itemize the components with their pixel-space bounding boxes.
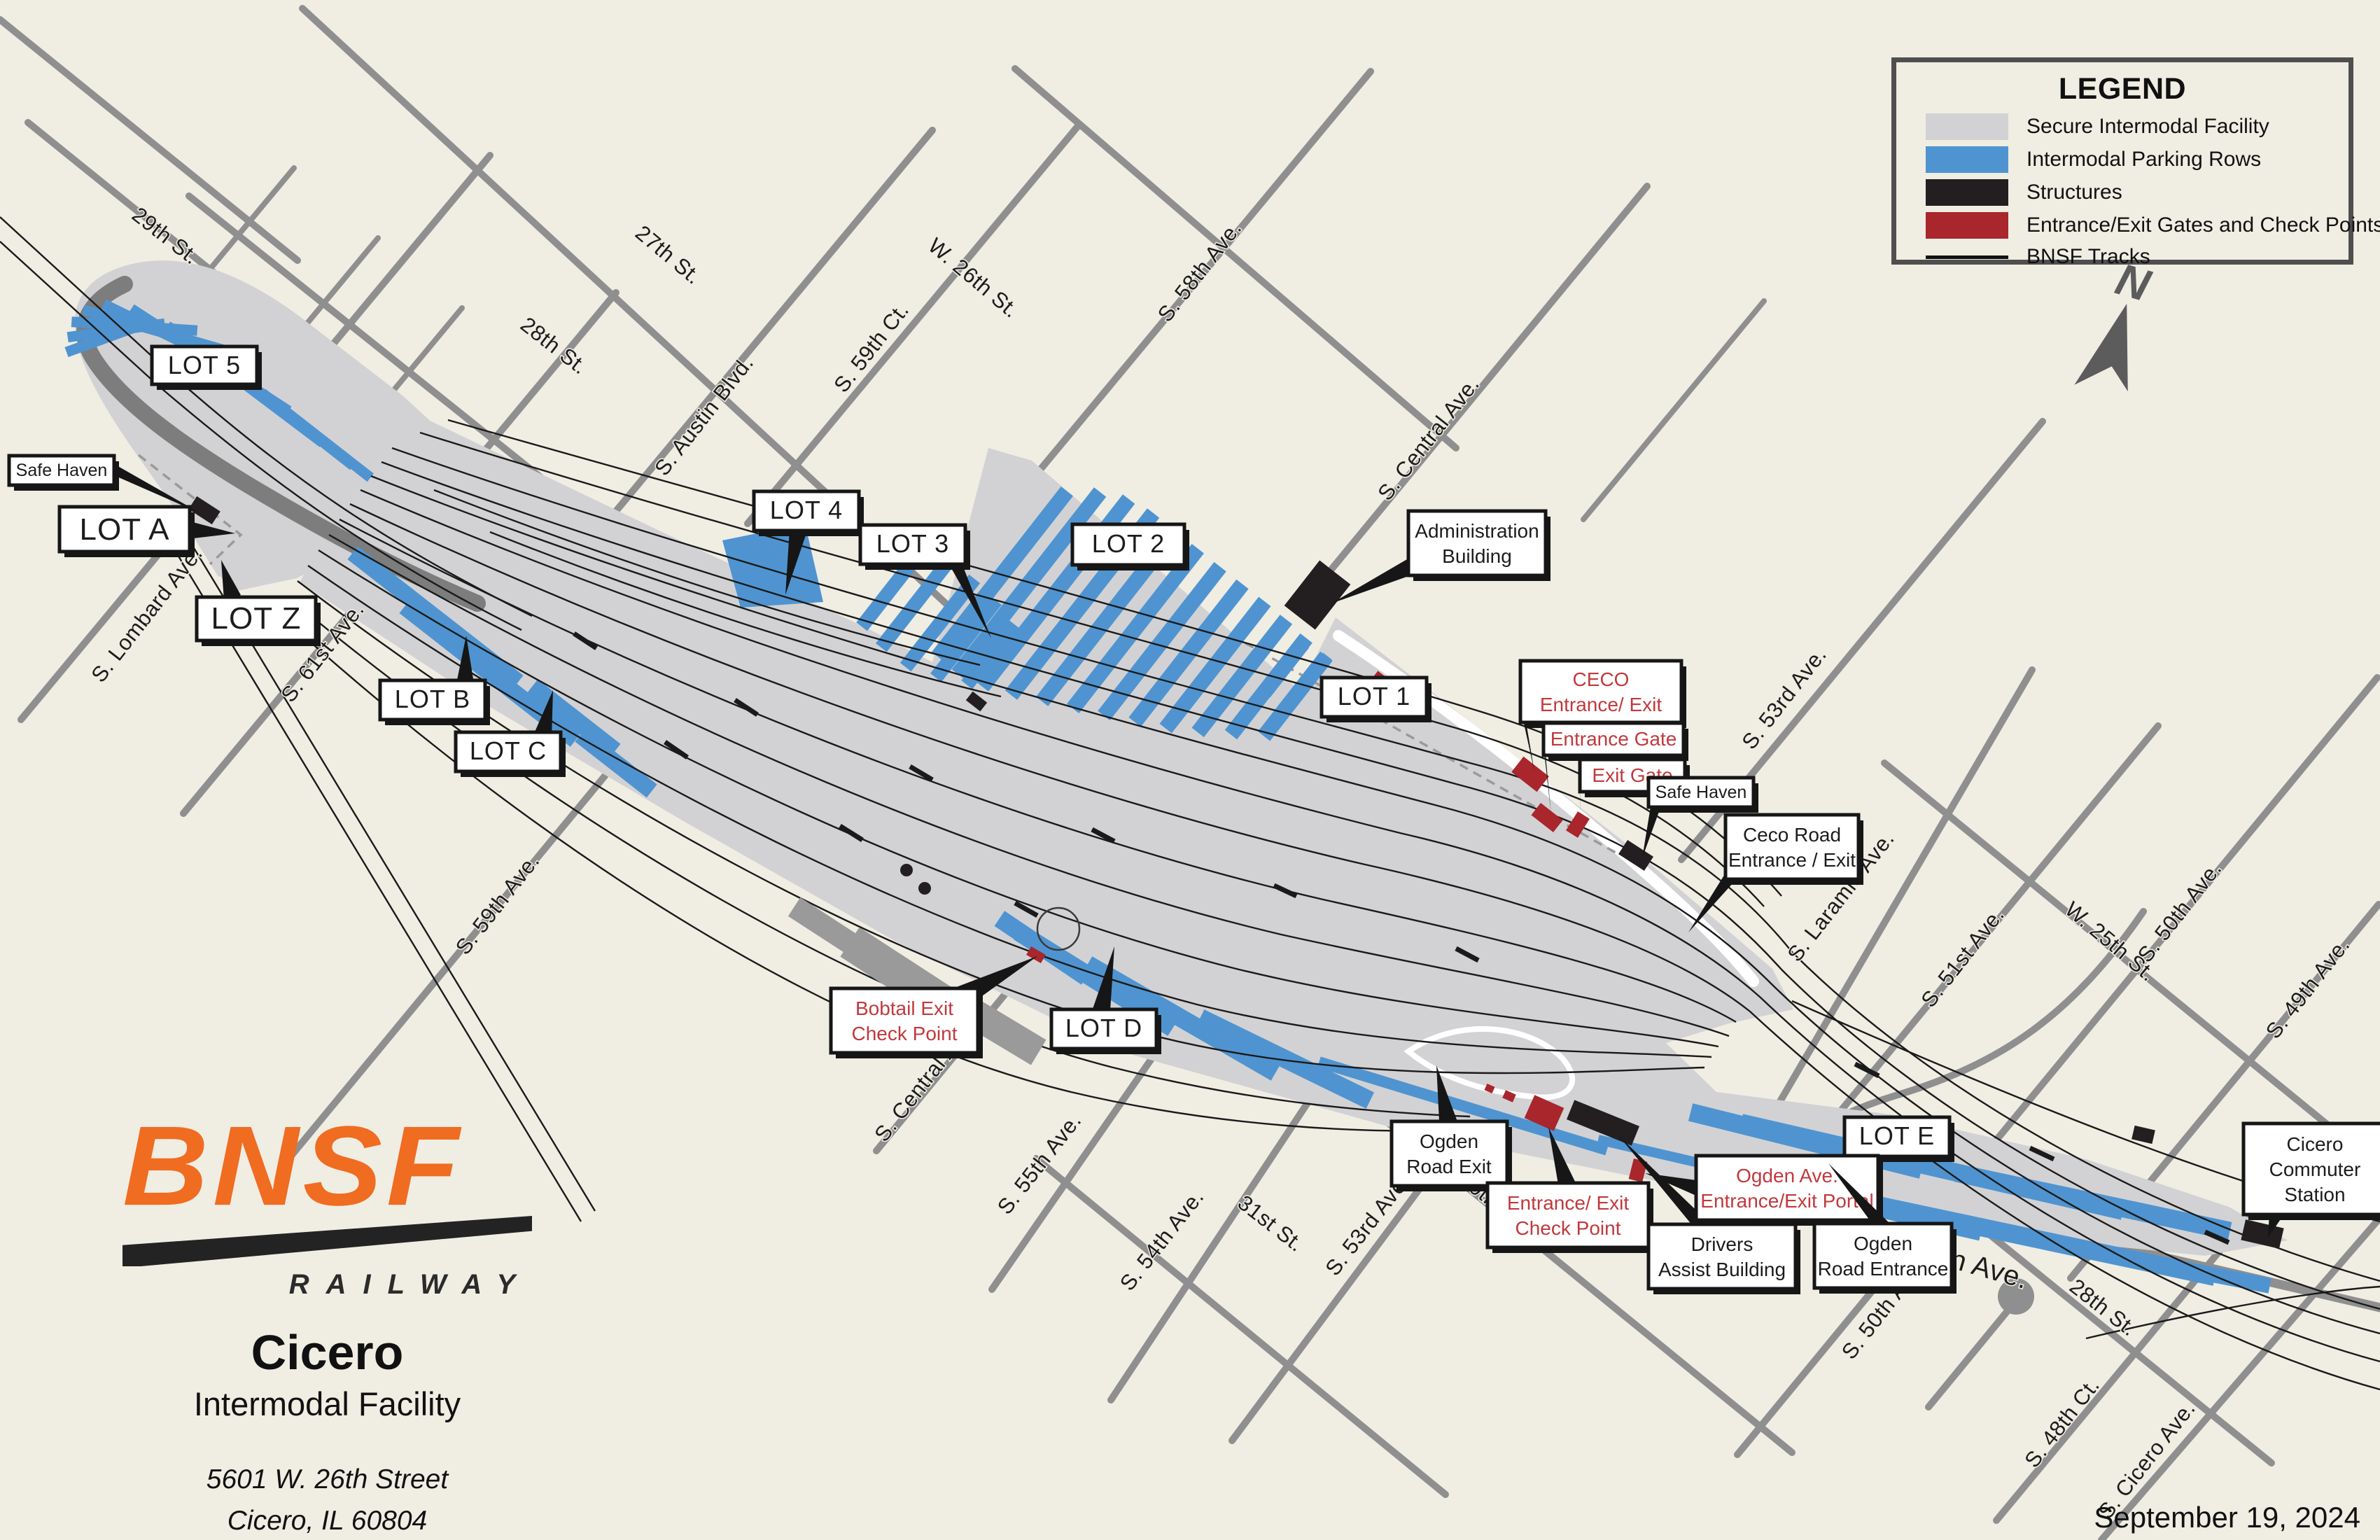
facility-subtitle: Intermodal Facility — [122, 1385, 532, 1423]
legend-title: LEGEND — [1896, 72, 2348, 106]
svg-text:Entrance/ Exit: Entrance/ Exit — [1507, 1192, 1630, 1214]
svg-text:LOT C: LOT C — [470, 736, 547, 765]
legend-row: Entrance/Exit Gates and Check Points — [1926, 212, 2348, 239]
callout-lot-5: LOT 5 — [152, 346, 262, 390]
north-arrow: N — [2074, 250, 2164, 399]
svg-text:Entrance/ Exit: Entrance/ Exit — [1540, 694, 1662, 715]
svg-text:Commuter: Commuter — [2269, 1158, 2361, 1180]
street-label: S. 59th Ave. — [451, 849, 545, 960]
street-label: 29th St. — [127, 202, 204, 269]
street-label: 31st St. — [1233, 1190, 1309, 1256]
north-arrow-icon — [2074, 296, 2150, 400]
lot-e-structure — [2131, 1126, 2155, 1144]
svg-text:LOT 3: LOT 3 — [876, 529, 949, 558]
structures-swatch — [1926, 179, 2008, 206]
svg-text:Assist Building: Assist Building — [1658, 1259, 1786, 1280]
parking-rows-swatch — [1926, 146, 2008, 173]
svg-text:Administration: Administration — [1415, 520, 1539, 542]
svg-text:Entrance/Exit Portal: Entrance/Exit Portal — [1700, 1190, 1873, 1212]
svg-text:Ogden Ave.: Ogden Ave. — [1736, 1165, 1838, 1186]
svg-text:LOT A: LOT A — [80, 512, 170, 547]
svg-text:LOT 5: LOT 5 — [168, 351, 241, 379]
administration-building-structure — [1284, 560, 1351, 629]
facility-city: Cicero — [122, 1324, 532, 1380]
map-canvas: 29th St. 28th St. 27th St. W. 26th St. S… — [0, 0, 2380, 1540]
svg-text:Safe Haven: Safe Haven — [1655, 783, 1747, 802]
map-date: September 19, 2024 — [2094, 1501, 2360, 1534]
callout-lot-2: LOT 2 — [1072, 524, 1189, 570]
svg-text:LOT 2: LOT 2 — [1092, 529, 1165, 558]
svg-text:Check Point: Check Point — [1515, 1217, 1621, 1239]
svg-text:LOT Z: LOT Z — [211, 601, 302, 636]
svg-text:LOT D: LOT D — [1065, 1014, 1142, 1042]
callout-lot-1: LOT 1 — [1322, 678, 1431, 722]
facility-address: 5601 W. 26th Street Cicero, IL 60804 — [122, 1459, 532, 1540]
legend-row: Secure Intermodal Facility — [1926, 113, 2348, 140]
legend-row: BNSF Tracks — [1926, 245, 2348, 269]
street-label: S. 59th Ct. — [829, 298, 913, 397]
svg-text:Safe Haven: Safe Haven — [16, 461, 108, 480]
bnsf-railway-label: RAILWAY — [122, 1269, 532, 1301]
svg-text:Ceco Road: Ceco Road — [1743, 824, 1841, 846]
svg-text:LOT B: LOT B — [395, 685, 470, 713]
legend-row: Structures — [1926, 179, 2348, 206]
svg-text:Cicero: Cicero — [2287, 1133, 2344, 1155]
street-label: S. 49th Ave. — [2261, 933, 2355, 1044]
gates-checkpoints-swatch — [1926, 212, 2008, 239]
legend-row: Intermodal Parking Rows — [1926, 146, 2348, 173]
svg-text:LOT 1: LOT 1 — [1338, 682, 1410, 710]
legend: LEGEND Secure Intermodal Facility Interm… — [1891, 57, 2353, 265]
svg-text:Road Exit: Road Exit — [1406, 1156, 1492, 1177]
svg-text:Building: Building — [1442, 545, 1512, 567]
svg-text:Ogden: Ogden — [1420, 1130, 1478, 1152]
svg-text:Entrance Gate: Entrance Gate — [1550, 728, 1677, 750]
bnsf-logo: BNSF — [122, 1116, 570, 1217]
svg-text:Entrance / Exit: Entrance / Exit — [1728, 849, 1856, 871]
svg-text:Station: Station — [2284, 1184, 2345, 1205]
svg-text:Road Entrance: Road Entrance — [1818, 1258, 1949, 1280]
svg-text:Bobtail Exit: Bobtail Exit — [855, 997, 953, 1019]
street-label: 27th St. — [631, 220, 706, 289]
brand-block: BNSF RAILWAY Cicero Intermodal Facility … — [122, 1113, 570, 1540]
secure-facility-swatch — [1926, 113, 2008, 140]
street-label: S. 58th Ave. — [1153, 216, 1247, 327]
callout-cicero-commuter-station: Cicero Commuter Station — [2243, 1123, 2380, 1238]
svg-text:LOT 4: LOT 4 — [770, 496, 843, 524]
svg-text:Drivers: Drivers — [1691, 1233, 1753, 1255]
street-label: S. 51st Ave. — [1916, 902, 2009, 1011]
svg-text:CECO: CECO — [1573, 668, 1630, 690]
street-label: S. 48th Ct. — [2019, 1373, 2104, 1472]
svg-text:Ogden: Ogden — [1854, 1233, 1912, 1254]
svg-text:Check Point: Check Point — [852, 1023, 958, 1044]
tracks-line-swatch — [1926, 255, 2008, 259]
street-label: S. 55th Ave. — [993, 1109, 1086, 1219]
svg-text:LOT E: LOT E — [1859, 1121, 1935, 1150]
